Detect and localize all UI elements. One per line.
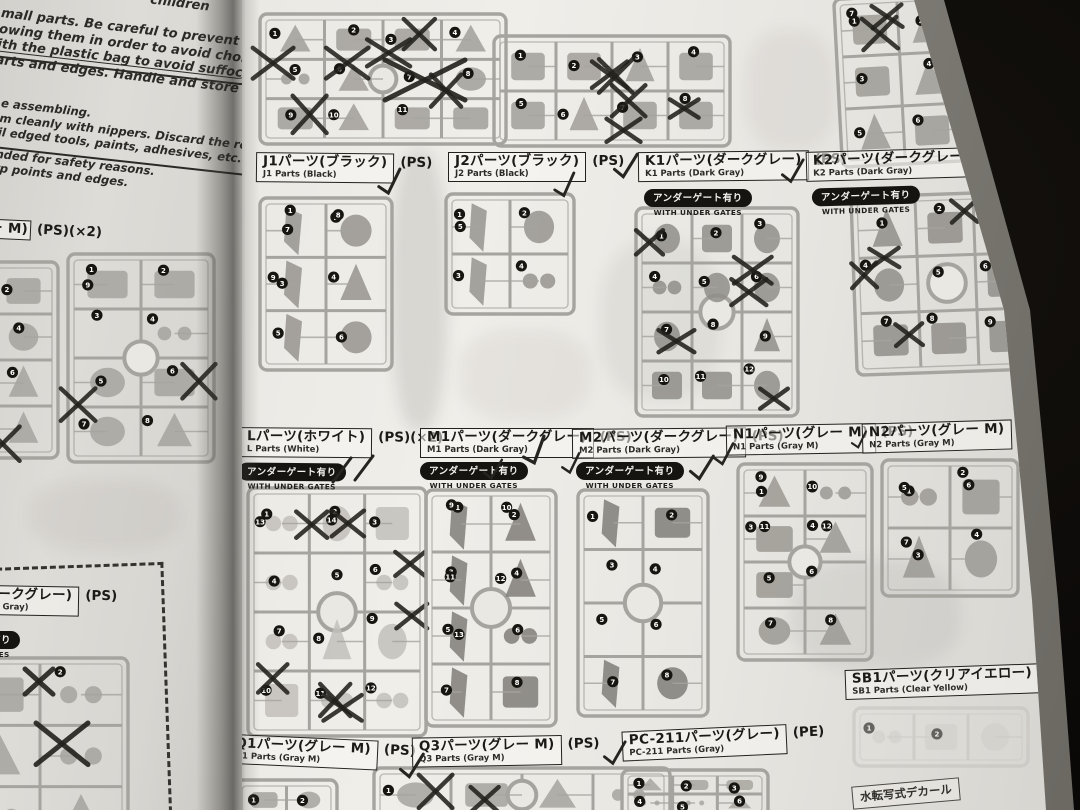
svg-text:2: 2 (684, 783, 689, 791)
svg-text:5: 5 (276, 330, 281, 338)
svg-text:9: 9 (85, 282, 90, 290)
badge-jp: アンダーゲート有り (576, 462, 684, 480)
svg-text:8: 8 (466, 70, 471, 78)
svg-text:2: 2 (522, 209, 527, 217)
print-bleedthrough (745, 30, 835, 150)
svg-text:4: 4 (272, 578, 277, 586)
runner-diagram-K1: 123456789101112 (634, 206, 800, 418)
svg-text:1: 1 (867, 725, 872, 733)
svg-text:3: 3 (610, 562, 615, 570)
material-code: (PS) (400, 154, 432, 171)
svg-text:4: 4 (810, 522, 815, 530)
svg-text:2: 2 (934, 730, 939, 738)
svg-text:2: 2 (351, 26, 356, 34)
svg-text:11: 11 (445, 573, 455, 581)
svg-text:5: 5 (99, 378, 104, 386)
runner-diagram-Q1: 12 (234, 778, 339, 810)
svg-text:8: 8 (336, 211, 341, 219)
svg-text:12: 12 (366, 685, 376, 693)
svg-text:3: 3 (916, 551, 921, 559)
svg-text:5: 5 (519, 100, 524, 108)
svg-text:5: 5 (902, 484, 907, 492)
svg-text:7: 7 (884, 318, 889, 326)
svg-text:8: 8 (515, 679, 520, 687)
svg-text:2: 2 (572, 62, 577, 70)
svg-text:6: 6 (561, 111, 566, 119)
svg-text:7: 7 (277, 627, 282, 635)
svg-text:8: 8 (664, 672, 669, 680)
svg-text:6: 6 (170, 367, 175, 375)
handwritten-slash-mark (352, 454, 376, 482)
svg-text:14: 14 (327, 517, 337, 525)
svg-text:4: 4 (331, 274, 336, 282)
svg-text:4: 4 (926, 60, 931, 68)
svg-text:2: 2 (4, 286, 9, 294)
svg-text:13: 13 (454, 631, 464, 639)
svg-text:2: 2 (669, 512, 674, 520)
svg-text:3: 3 (859, 75, 864, 83)
under-gate-badge-m2: アンダーゲート有り WITH UNDER GATES (576, 459, 684, 490)
svg-text:3: 3 (280, 280, 285, 288)
runner-diagram-N2: 1234567 (880, 458, 1020, 598)
svg-text:9: 9 (763, 333, 768, 341)
runner-diagram-M2: 12345678 (576, 488, 710, 718)
svg-text:1: 1 (457, 211, 462, 219)
part-name-jp: M2パーツ(ダークグレー) (579, 429, 739, 445)
svg-text:4: 4 (16, 325, 21, 333)
svg-text:1: 1 (264, 511, 269, 519)
svg-text:1: 1 (288, 207, 293, 215)
material-code: (PS) (85, 587, 117, 605)
svg-text:3: 3 (748, 524, 753, 532)
svg-text:8: 8 (930, 315, 935, 323)
water-slide-decal-label: 水転写式デカール (851, 777, 961, 809)
svg-text:9: 9 (370, 615, 375, 623)
svg-text:6: 6 (515, 626, 520, 634)
svg-text:12: 12 (496, 575, 506, 583)
material-code: (PE) (792, 722, 824, 740)
svg-text:1: 1 (89, 266, 94, 274)
svg-text:9: 9 (759, 473, 764, 481)
svg-text:7: 7 (82, 421, 87, 429)
svg-text:1: 1 (637, 780, 642, 788)
runner-diagram-M1: 12345678910111213 (424, 488, 558, 728)
svg-text:10: 10 (502, 504, 512, 512)
part-name-en: M1 Parts (Dark Gray) (427, 445, 587, 455)
part-name-en: Q3 Parts (Gray M) (419, 752, 555, 764)
svg-text:5: 5 (767, 574, 772, 582)
svg-text:7: 7 (444, 687, 449, 695)
svg-text:9: 9 (449, 502, 454, 510)
svg-text:10: 10 (329, 111, 339, 119)
badge-jp: アンダーゲート有り (644, 189, 752, 207)
part-name-jp: ー M) (0, 221, 28, 237)
under-gate-badge-k2: アンダーゲート有り WITH UNDER GATES (812, 183, 920, 216)
svg-text:5: 5 (599, 616, 604, 624)
svg-text:6: 6 (809, 568, 814, 576)
handwritten-checkmark (778, 158, 810, 186)
part-name-jp: Q3パーツ(グレー M) (419, 737, 555, 754)
runner-diagram-N1: 123456789101112 (736, 462, 874, 662)
part-name-jp: M1パーツ(ダークグレー) (427, 430, 587, 445)
part-label-partial: ー M) (PS)(×2) (0, 218, 102, 243)
svg-text:6: 6 (654, 621, 659, 629)
svg-text:8: 8 (711, 321, 716, 329)
part-name-jp: J1パーツ(ブラック) (263, 154, 387, 170)
svg-text:4: 4 (863, 262, 868, 270)
svg-text:2: 2 (937, 205, 942, 213)
svg-text:1: 1 (251, 796, 256, 804)
part-label-q1: Q1パーツ(グレー M) Q1 Parts (Gray M) (PS) (227, 734, 416, 772)
badge-en: WITH UNDER GATES (420, 481, 528, 490)
svg-text:9: 9 (988, 318, 993, 326)
handwritten-checkmark (396, 752, 429, 781)
svg-text:3: 3 (732, 785, 737, 793)
part-label-q3: Q3パーツ(グレー M) Q3 Parts (Gray M) (PS) (412, 734, 600, 767)
badge-jp: ート有り (0, 631, 20, 649)
svg-text:1: 1 (590, 513, 595, 521)
svg-text:13: 13 (255, 518, 265, 526)
svg-text:4: 4 (452, 29, 457, 37)
runner-diagram-J2: 12345 (444, 192, 576, 316)
badge-en: WITH UNDER GATES (576, 481, 684, 490)
svg-text:6: 6 (915, 117, 920, 125)
under-gate-badge-m1: アンダーゲート有り WITH UNDER GATES (420, 459, 528, 490)
handwritten-x-mark (385, 60, 465, 100)
svg-text:6: 6 (983, 262, 988, 270)
svg-text:4: 4 (974, 531, 979, 539)
svg-text:4: 4 (652, 273, 657, 281)
part-label-l: Lパーツ(ホワイト) L Parts (White) (PS)(×2) (240, 427, 443, 458)
svg-text:9: 9 (288, 111, 293, 119)
svg-text:5: 5 (702, 278, 707, 286)
svg-text:12: 12 (744, 366, 754, 374)
svg-text:4: 4 (150, 315, 155, 323)
svg-text:8: 8 (828, 616, 833, 624)
part-label-dashed-partial: (ダークグレー) Dark Gray) (PS) (0, 585, 117, 617)
part-label-j2: J2パーツ(ブラック) J2 Parts (Black) (PS) (448, 152, 624, 182)
svg-text:8: 8 (145, 417, 150, 425)
part-label-j1: J1パーツ(ブラック) J1 Parts (Black) (PS) (256, 152, 433, 183)
part-name-en: L Parts (White) (247, 444, 365, 455)
material-code: (PS)(×2) (37, 221, 103, 241)
svg-text:8: 8 (683, 95, 688, 103)
svg-text:1: 1 (272, 30, 277, 38)
print-bleedthrough (460, 330, 590, 420)
svg-text:3: 3 (372, 519, 377, 527)
svg-text:4: 4 (691, 48, 696, 56)
svg-text:5: 5 (335, 571, 340, 579)
runner-diagram-left-b: 123456789 (66, 252, 216, 464)
handwritten-slash-mark (330, 456, 354, 484)
svg-text:3: 3 (757, 220, 762, 228)
svg-text:3: 3 (635, 54, 640, 62)
runner-diagram-top-b: 12345678 (492, 34, 732, 148)
svg-text:6: 6 (373, 566, 378, 574)
photo-scene: J1パーツ(ブラック) J1 Parts (Black) (PS) J2パーツ(… (0, 0, 1080, 810)
handwritten-checkmark (610, 152, 643, 181)
svg-text:11: 11 (696, 373, 706, 381)
print-bleedthrough (30, 480, 180, 550)
svg-text:5: 5 (293, 66, 298, 74)
svg-text:2: 2 (300, 797, 305, 805)
svg-text:2: 2 (714, 229, 719, 237)
svg-text:2: 2 (960, 469, 965, 477)
svg-text:4: 4 (653, 566, 658, 574)
svg-text:3: 3 (456, 272, 461, 280)
svg-text:1: 1 (852, 18, 857, 26)
material-code: (PS) (567, 734, 599, 752)
svg-text:5: 5 (446, 626, 451, 634)
svg-text:7: 7 (904, 539, 909, 547)
svg-text:5: 5 (936, 268, 941, 276)
handwritten-checkmark (480, 458, 507, 482)
under-gate-badge-partial: ート有り R GATES (0, 628, 20, 659)
svg-text:7: 7 (610, 678, 615, 686)
svg-text:9: 9 (271, 274, 276, 282)
part-name-en: N1 Parts (Gray M) (733, 440, 869, 452)
badge-en: WITH UNDER GATES (644, 208, 752, 217)
badge-en: R GATES (0, 650, 20, 659)
svg-text:10: 10 (659, 376, 669, 384)
part-label-pc211: PC-211パーツ(グレー) PC-211 Parts (Gray) (PE) (621, 722, 825, 761)
svg-text:6: 6 (339, 334, 344, 342)
svg-text:6: 6 (966, 481, 971, 489)
part-name-jp: Lパーツ(ホワイト) (247, 429, 365, 445)
svg-text:1: 1 (759, 488, 764, 496)
runner-diagram-L: 1234567891011121314 (246, 486, 428, 738)
svg-text:3: 3 (95, 312, 100, 320)
svg-text:2: 2 (512, 511, 517, 519)
badge-jp: アンダーゲート有り (420, 462, 528, 480)
runner-diagram-J1: 123456789 (258, 196, 394, 372)
svg-text:3: 3 (388, 36, 393, 44)
handwritten-checkmark (600, 740, 632, 768)
runner-diagram-top-a: 1234567891011 (258, 12, 508, 146)
svg-text:5: 5 (458, 223, 463, 231)
svg-text:11: 11 (398, 106, 408, 114)
svg-text:2: 2 (161, 267, 166, 275)
handwritten-x-mark (36, 723, 88, 765)
runner-diagram-left-a: 123456 (0, 260, 60, 460)
svg-text:11: 11 (760, 523, 770, 531)
svg-text:1: 1 (386, 787, 391, 795)
svg-text:7: 7 (285, 226, 290, 234)
svg-text:4: 4 (514, 570, 519, 578)
part-name-jp: (ダークグレー) (0, 587, 72, 603)
svg-text:6: 6 (737, 798, 742, 806)
runner-diagram-SB1: 12 (852, 706, 1030, 768)
svg-text:7: 7 (768, 620, 773, 628)
svg-text:12: 12 (822, 522, 832, 530)
svg-text:5: 5 (857, 129, 862, 137)
svg-text:10: 10 (807, 483, 817, 491)
svg-text:6: 6 (10, 369, 15, 377)
left-manual-page: children mall parts. Be careful to preve… (0, 0, 242, 810)
svg-text:4: 4 (519, 263, 524, 271)
badge-jp: アンダーゲート有り (812, 185, 920, 206)
part-name-jp: J2パーツ(ブラック) (455, 154, 579, 169)
svg-text:7: 7 (849, 10, 854, 18)
svg-text:1: 1 (879, 219, 884, 227)
svg-text:8: 8 (316, 635, 321, 643)
handwritten-checkmark (373, 167, 408, 199)
part-name-en: J1 Parts (Black) (263, 169, 387, 180)
svg-text:4: 4 (637, 798, 642, 806)
svg-text:2: 2 (58, 668, 63, 676)
svg-text:5: 5 (680, 803, 685, 810)
under-gate-badge-k1: アンダーゲート有り WITH UNDER GATES (644, 186, 752, 217)
runner-diagram-PC-211: 123456 (620, 768, 770, 810)
svg-text:1: 1 (518, 52, 523, 60)
handwritten-x-mark (25, 669, 53, 694)
